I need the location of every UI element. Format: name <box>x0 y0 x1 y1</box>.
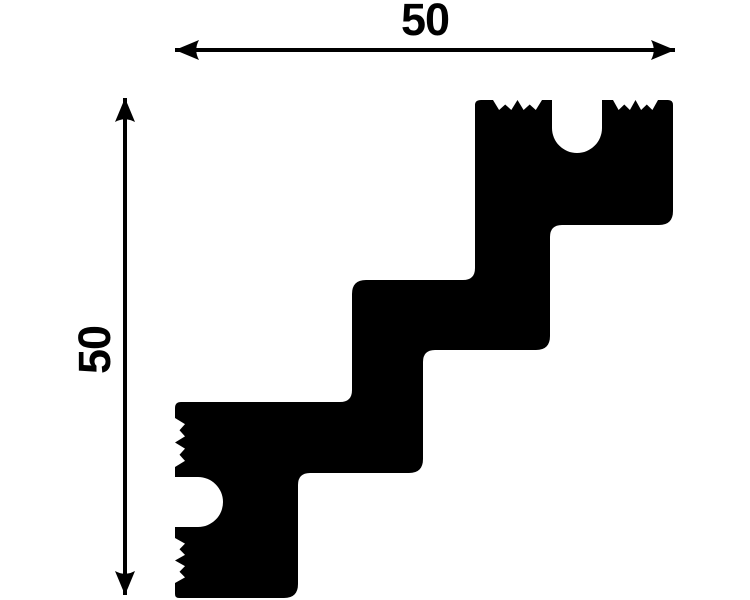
diagram-canvas: 50 50 <box>0 0 750 600</box>
arrowhead-up-icon <box>115 98 135 122</box>
width-dimension: 50 <box>175 0 675 60</box>
profile-diagram: 50 50 <box>0 0 750 600</box>
height-dimension-label: 50 <box>69 326 120 374</box>
arrowhead-right-icon <box>651 40 675 60</box>
width-dimension-label: 50 <box>401 0 449 45</box>
arrowhead-left-icon <box>175 40 199 60</box>
arrowhead-down-icon <box>115 571 135 595</box>
height-dimension: 50 <box>69 98 135 595</box>
molding-profile-shape <box>175 100 673 598</box>
